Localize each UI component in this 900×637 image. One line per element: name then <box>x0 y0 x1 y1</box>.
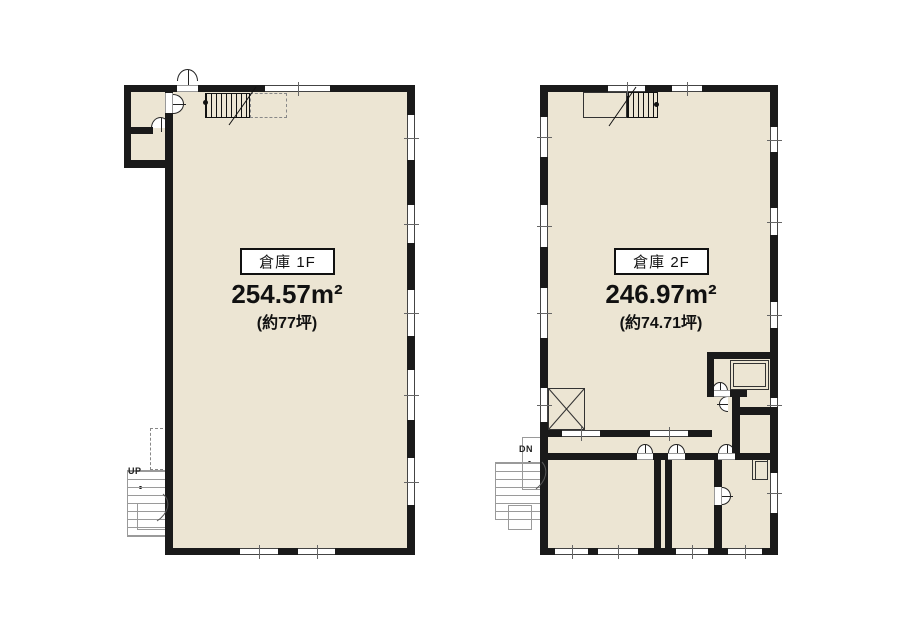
floor1-area-tsubo: (約77坪) <box>197 309 377 333</box>
wall-segment <box>645 85 672 92</box>
wall-segment <box>653 453 668 460</box>
window <box>298 548 335 555</box>
window <box>407 115 415 160</box>
stair-treads <box>627 92 658 118</box>
wall-segment <box>638 548 676 555</box>
wall-segment <box>665 460 672 548</box>
closet <box>730 360 769 390</box>
door-threshold <box>177 85 198 92</box>
door-threshold <box>668 453 685 460</box>
wall-segment <box>540 422 548 555</box>
floor1-name-box: 倉庫 1F <box>240 248 335 275</box>
wall-segment <box>407 420 415 458</box>
window <box>265 85 330 92</box>
wall-segment <box>407 243 415 290</box>
floor2-area-tsubo: (約74.71坪) <box>571 309 751 333</box>
wall-segment <box>707 352 778 359</box>
window <box>608 85 645 92</box>
window <box>598 548 638 555</box>
door-threshold <box>714 390 730 397</box>
wall-segment <box>714 505 722 548</box>
floor2-name-box: 倉庫 2F <box>614 248 709 275</box>
door-swing-arc <box>177 69 198 81</box>
wall-segment <box>548 453 637 460</box>
wall-segment <box>770 513 778 555</box>
wall-segment <box>548 430 562 437</box>
wall-segment <box>688 430 712 437</box>
wall-segment <box>124 85 131 168</box>
wall-segment <box>732 397 740 415</box>
window <box>770 208 778 235</box>
floor1-name-label: 倉庫 1F <box>259 251 316 272</box>
wall-segment <box>770 152 778 208</box>
window <box>407 290 415 336</box>
stair-treads <box>205 93 250 118</box>
door-threshold <box>165 93 173 113</box>
wall-segment <box>407 336 415 370</box>
window <box>540 288 548 338</box>
wall-segment <box>702 85 778 92</box>
step-box <box>752 458 768 480</box>
wall-segment <box>714 460 722 487</box>
floor1-stair-up-label: UP <box>128 466 142 476</box>
window <box>770 302 778 328</box>
stair-outline-dotted <box>250 93 287 118</box>
door-threshold <box>714 487 722 505</box>
floor2-name-label: 倉庫 2F <box>633 251 690 272</box>
wall-segment <box>735 453 770 460</box>
window <box>540 388 548 422</box>
window <box>770 127 778 152</box>
window <box>540 117 548 157</box>
wall-segment <box>407 160 415 205</box>
wall-segment <box>165 113 173 555</box>
floorplan-canvas: 倉庫 1F 254.57m² (約77坪) UP 倉庫 2F 246.97m² … <box>0 0 900 637</box>
wall-segment <box>198 85 265 92</box>
wall-segment <box>131 127 153 134</box>
wall-segment <box>540 338 548 388</box>
floor2-stair-dn-label: DN <box>519 444 533 454</box>
wall-segment <box>770 235 778 302</box>
window <box>407 370 415 420</box>
wall-segment <box>335 548 415 555</box>
wall-segment <box>165 548 240 555</box>
wall-segment <box>770 328 778 398</box>
elevator-shaft <box>548 388 585 430</box>
floor1-area-m2: 254.57m² <box>197 279 377 310</box>
window <box>728 548 762 555</box>
wall-segment <box>124 85 177 92</box>
wall-segment <box>708 548 728 555</box>
window <box>672 85 702 92</box>
wall-segment <box>732 415 740 453</box>
window <box>770 473 778 513</box>
wall-segment <box>600 430 650 437</box>
wall-segment <box>654 460 661 548</box>
wall-segment <box>540 247 548 288</box>
wall-segment <box>770 412 778 473</box>
door-threshold <box>637 453 653 460</box>
window <box>407 205 415 243</box>
window <box>562 430 600 437</box>
window <box>555 548 588 555</box>
door-threshold <box>718 453 735 460</box>
floor2-area-m2: 246.97m² <box>571 279 751 310</box>
window <box>407 458 415 505</box>
wall-segment <box>588 548 598 555</box>
wall-segment <box>730 390 747 397</box>
wall-segment <box>278 548 298 555</box>
wall-segment <box>330 85 415 92</box>
wall-segment <box>540 85 608 92</box>
window <box>540 205 548 247</box>
wall-segment <box>707 359 714 392</box>
window <box>676 548 708 555</box>
wall-segment <box>685 453 718 460</box>
window <box>240 548 278 555</box>
wall-segment <box>540 157 548 205</box>
window <box>650 430 688 437</box>
floor2-stair-landing <box>583 92 627 118</box>
